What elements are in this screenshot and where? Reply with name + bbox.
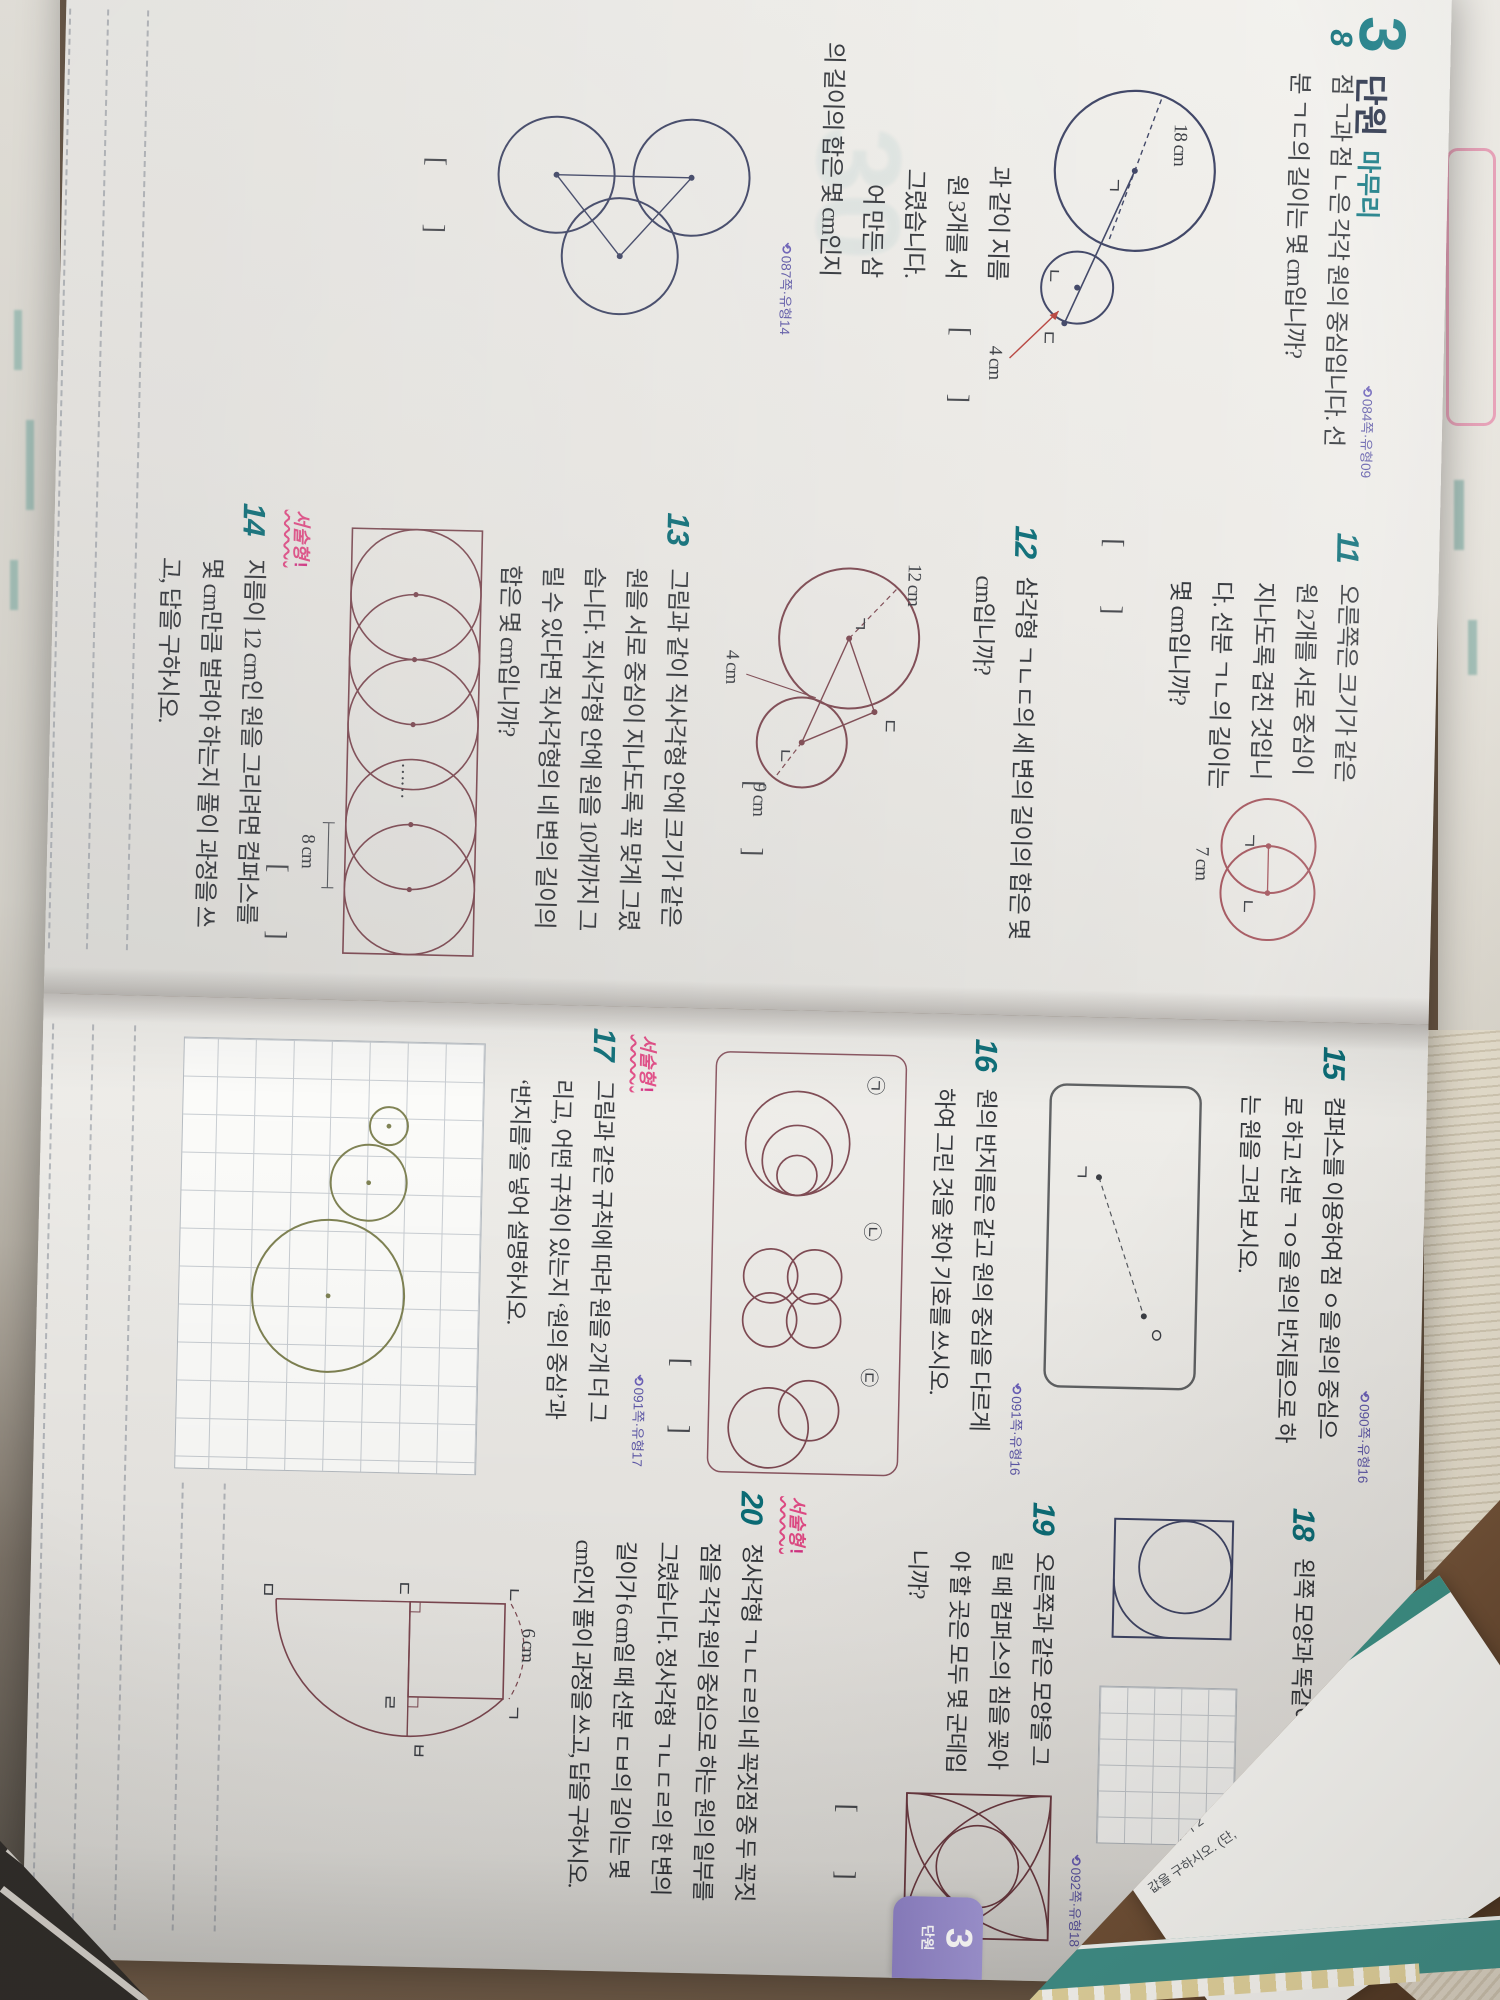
problem-20-number: 20	[733, 1491, 770, 1524]
label-d: ㄷ	[392, 1579, 413, 1596]
problem-8-text: 점 ㄱ과 점 ㄴ은 각각 원의 중심입니다. 선분 ㄱㄷ의 길이는 몇 cm입니…	[1270, 72, 1362, 446]
label-r: ㄹ	[378, 1693, 399, 1710]
problem-11-text: 오른쪽은 크기가 같은원 2개를 서로 중심이지나도록 겹친 것입니 다. 선분…	[1154, 579, 1369, 791]
label-d: ㄷ	[1037, 329, 1058, 346]
reference-icon: ⟲	[1357, 1391, 1372, 1403]
reference-tag: ⟲090쪽·유형16	[1354, 1053, 1384, 1483]
problem-16-text: 원의 반지름은 같고 원의 중심을 다르게하여 그린 것을 찾아 기호를 쓰시오…	[915, 1087, 1007, 1431]
photo-of-workbook: 30 3 단원 마무리 ⟲084쪽·유형09 8 점 ㄱ과 점 ㄴ은 각각 원의…	[0, 0, 1500, 2000]
label-g: ㄱ	[1102, 176, 1123, 193]
problem-19-number: 19	[1025, 1502, 1062, 1535]
label-6cm: 6 cm	[517, 1628, 539, 1663]
problem-18-figure	[1104, 1513, 1239, 1648]
problem-12-number: 12	[1007, 525, 1044, 558]
label-n: ㄴ	[1236, 897, 1257, 914]
problem-8-number: 8	[1323, 29, 1359, 46]
pencil-icon: !	[291, 561, 311, 567]
answer-bracket-11: []	[1097, 538, 1130, 615]
problem-16-number: 16	[967, 1038, 1004, 1071]
answer-bracket-10: []	[419, 157, 452, 234]
problem-11-figure: ㄱ ㄴ 7 cm	[1170, 782, 1350, 1001]
problem-15-figure: ㄱ ㅇ	[1032, 1076, 1209, 1410]
reference-tag: ⟲092쪽·유형18	[1066, 1557, 1095, 1947]
reference-icon: ⟲	[1360, 385, 1375, 397]
problem-20-text: 정사각형 ㄱㄴㄷㄹ의 네 꼭짓점 중 두 꼭짓점을 각각 원의 중심으로 하는 …	[555, 1539, 773, 1901]
label-m: ㅁ	[256, 1580, 277, 1597]
problem-14-number: 14	[235, 503, 272, 536]
pencil-icon: !	[786, 1548, 806, 1554]
reference-tag: ⟲091쪽·유형16	[1006, 1045, 1036, 1475]
label-b: ㅂ	[407, 1742, 428, 1759]
reference-icon: ⟲	[779, 242, 794, 254]
label-n: ㄴ	[773, 747, 794, 764]
label-d: ㄷ	[878, 717, 899, 734]
label-g: ㄱ	[1237, 831, 1258, 848]
answer-bracket-16: []	[664, 1358, 697, 1435]
label-18cm: 18 cm	[1169, 124, 1191, 168]
essay-badge: 서술형!	[289, 510, 316, 568]
answer-bracket-19: []	[830, 1803, 863, 1880]
left-page: 30 3 단원 마무리 ⟲084쪽·유형09 8 점 ㄱ과 점 ㄴ은 각각 원의…	[44, 0, 1452, 1025]
answer-line	[172, 1483, 184, 1931]
option-1-label: ㉠	[864, 1076, 886, 1095]
essay-badge: 서술형!	[635, 1035, 662, 1093]
problem-19-text: 오른쪽과 같은 모양을 그릴 때 컴퍼스의 침을 꽂아 야 할 곳은 모두 몇 …	[891, 1549, 1064, 1775]
problem-14-text: 지름이 12 cm인 원을 그리려면 컴퍼스를몇 cm만큼 벌려야 하는지 풀이…	[140, 557, 274, 929]
problem-16-figure: ㉠ ㉡ ㉢	[700, 1046, 912, 1482]
problem-17-circles	[176, 1037, 486, 1474]
problem-13-text: 그림과 같이 직사각형 안에 크기가 같은원을 서로 중심이 지나도록 꼭 맞게…	[480, 564, 698, 932]
label-g: ㄱ	[848, 614, 869, 631]
label-o: ㅇ	[1144, 1326, 1165, 1343]
label-7cm: 7 cm	[1191, 846, 1213, 881]
problem-10-figure	[468, 18, 775, 355]
reference-tag: ⟲087쪽·유형14	[776, 75, 802, 335]
label-n: ㄴ	[1042, 267, 1063, 284]
answer-line	[114, 1025, 137, 1930]
answer-line	[86, 9, 109, 949]
problem-13-figure: …… 8 cm	[293, 522, 488, 966]
ellipsis-dots: ……	[396, 762, 418, 798]
label-8cm: 8 cm	[297, 834, 319, 869]
answer-line	[72, 1024, 95, 1929]
unit-tab-number: 3	[934, 1897, 984, 1980]
reference-icon: ⟲	[1009, 1383, 1024, 1395]
option-2-label: ㉡	[860, 1222, 882, 1241]
answer-bracket-8: []	[944, 327, 977, 404]
pink-box-fragment	[1446, 148, 1496, 426]
label-g: ㄱ	[501, 1704, 522, 1721]
pencil-icon: !	[637, 1086, 657, 1092]
option-3-label: ㉢	[857, 1368, 879, 1387]
label-n: ㄴ	[502, 1586, 523, 1603]
label-12cm: 12 cm	[903, 564, 925, 608]
problem-17-text: 그림과 같은 규칙에 따라 원을 2개 더 그리고, 어떤 규칙이 있는지 ‘원…	[491, 1078, 625, 1422]
problem-12-text: 삼각형 ㄱㄴㄷ의 세 변의 길이의 합은 몇cm입니까?	[954, 575, 1046, 940]
problem-20-figure: 6 cm ㄴ ㄱ ㄷ ㄹ ㅂ ㅁ	[239, 1538, 546, 1875]
answer-bracket-12: []	[737, 780, 770, 857]
problem-11-number: 11	[1329, 532, 1366, 563]
problem-18-number: 18	[1285, 1508, 1322, 1541]
problem-15-number: 15	[1315, 1046, 1352, 1079]
unit-tab-label: 단원	[920, 1896, 936, 1978]
reference-icon: ⟲	[1068, 1854, 1083, 1866]
label-4cm: 4 cm	[721, 650, 743, 685]
label-g: ㄱ	[1070, 1163, 1091, 1180]
problem-13-number: 13	[659, 512, 696, 545]
problem-10-text-cropped: 과 같이 지름원 3개를 서그렸습니다. 어 만든 삼의 길이의 합은 몇 cm…	[807, 0, 1024, 280]
essay-badge: 서술형!	[784, 1496, 811, 1554]
label-4cm: 4 cm	[984, 345, 1006, 380]
reference-tag: ⟲091쪽·유형17	[628, 1167, 655, 1467]
unit-tab: 3 단원	[892, 1896, 984, 1980]
answer-line	[214, 1484, 226, 1932]
reference-icon: ⟲	[631, 1374, 646, 1386]
problem-15-text: 컴퍼스를 이용하여 점 ㅇ을 원의 중심으로 하고 선분 ㄱㅇ을 원의 반지름으…	[1221, 1094, 1355, 1443]
workbook-spread: 30 3 단원 마무리 ⟲084쪽·유형09 8 점 ㄱ과 점 ㄴ은 각각 원의…	[22, 0, 1452, 1989]
